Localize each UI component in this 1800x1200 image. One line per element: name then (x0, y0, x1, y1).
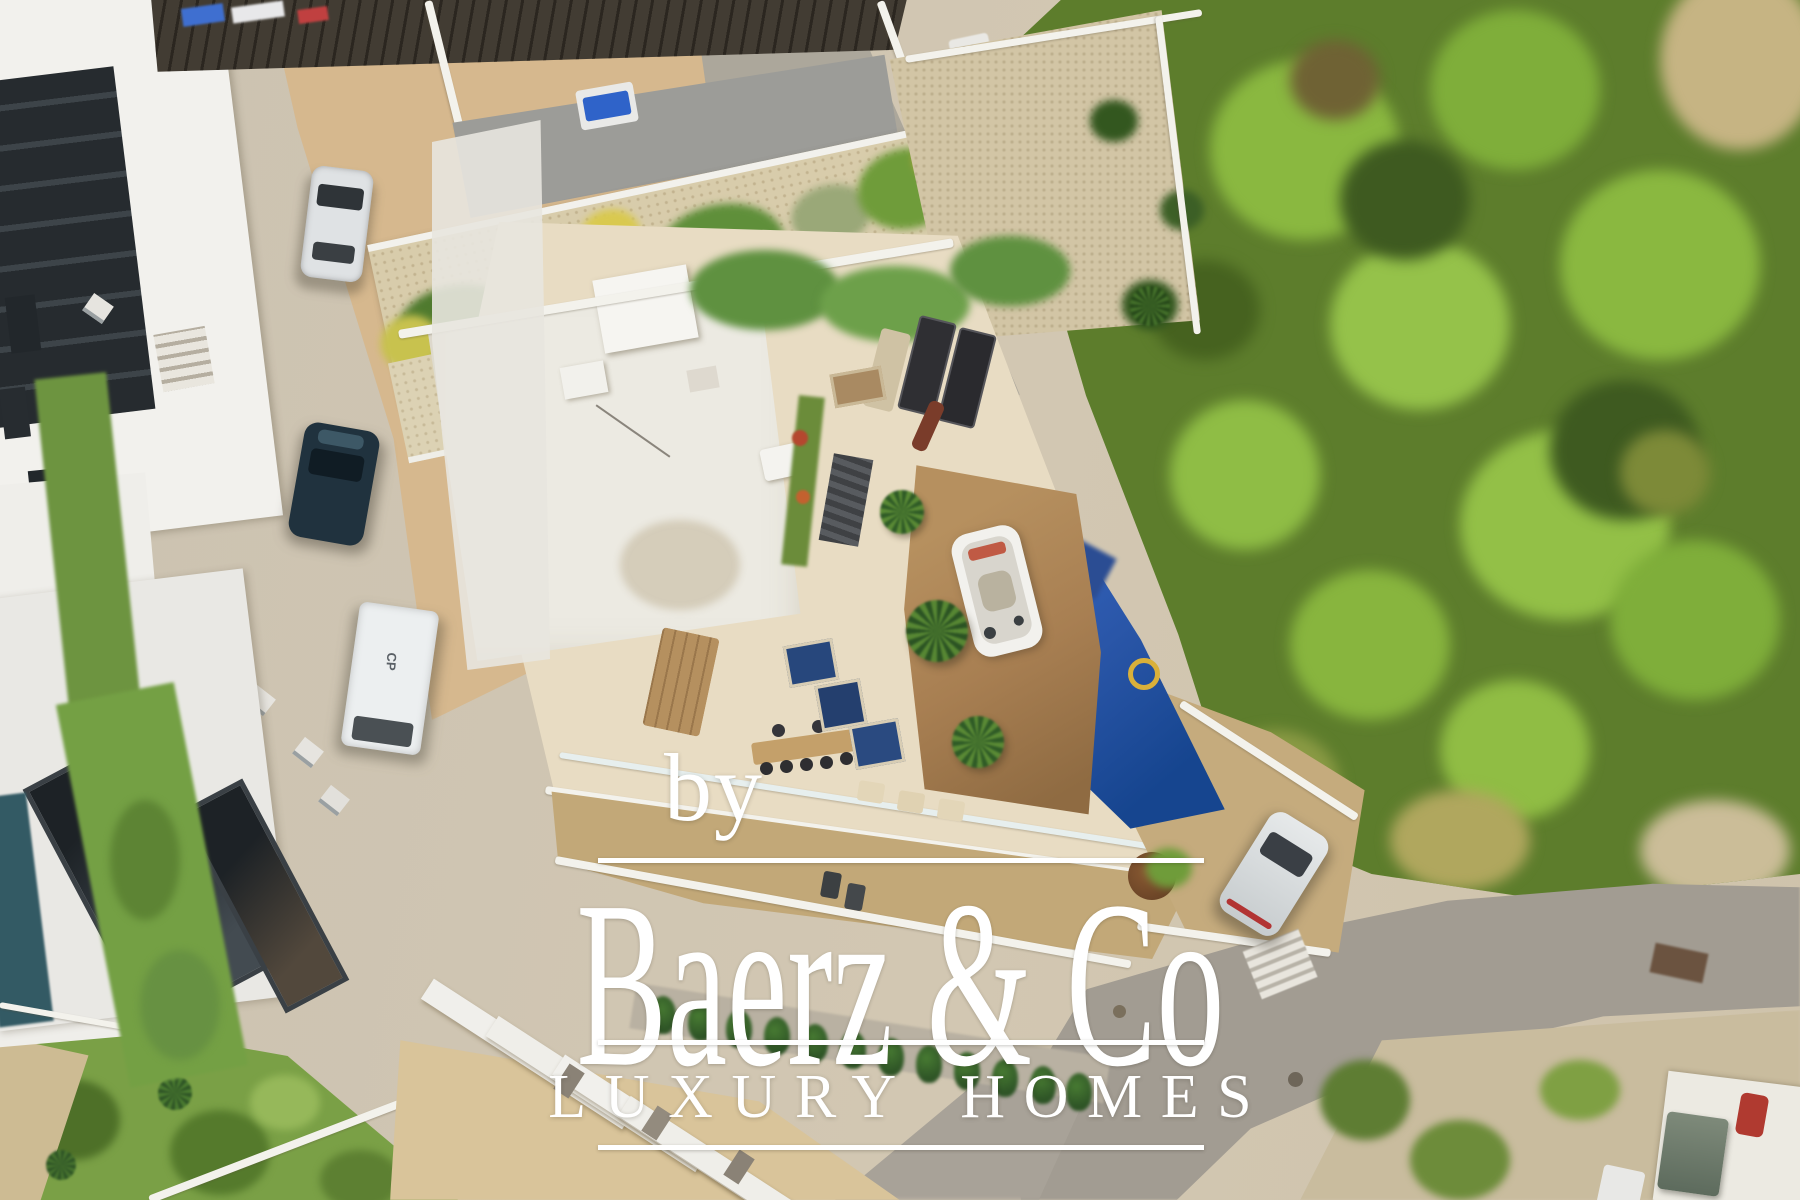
watermark-by: by (664, 740, 764, 836)
aerial-photo-listing: CP (0, 0, 1800, 1200)
watermark: by Baerz & Co LUXURY HOMES (0, 0, 1800, 1200)
watermark-rule-bottom (598, 1145, 1204, 1150)
watermark-rule-middle (598, 1040, 1204, 1045)
watermark-tagline: LUXURY HOMES (300, 1066, 1500, 1128)
